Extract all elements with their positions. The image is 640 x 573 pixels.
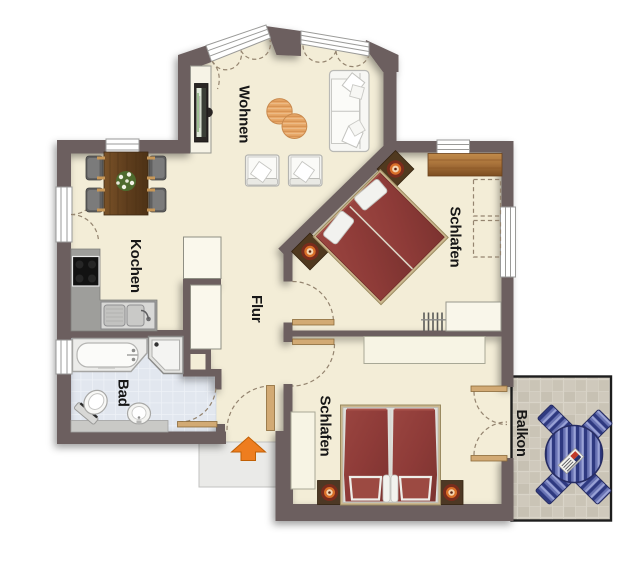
- svg-text:Kochen: Kochen: [127, 239, 144, 293]
- svg-text:Balkon: Balkon: [513, 410, 529, 457]
- svg-text:Schlafen: Schlafen: [447, 207, 464, 268]
- svg-text:Bad: Bad: [115, 379, 132, 407]
- svg-text:Flur: Flur: [248, 295, 265, 323]
- svg-text:Schlafen: Schlafen: [317, 396, 334, 457]
- svg-text:Wohnen: Wohnen: [236, 86, 253, 144]
